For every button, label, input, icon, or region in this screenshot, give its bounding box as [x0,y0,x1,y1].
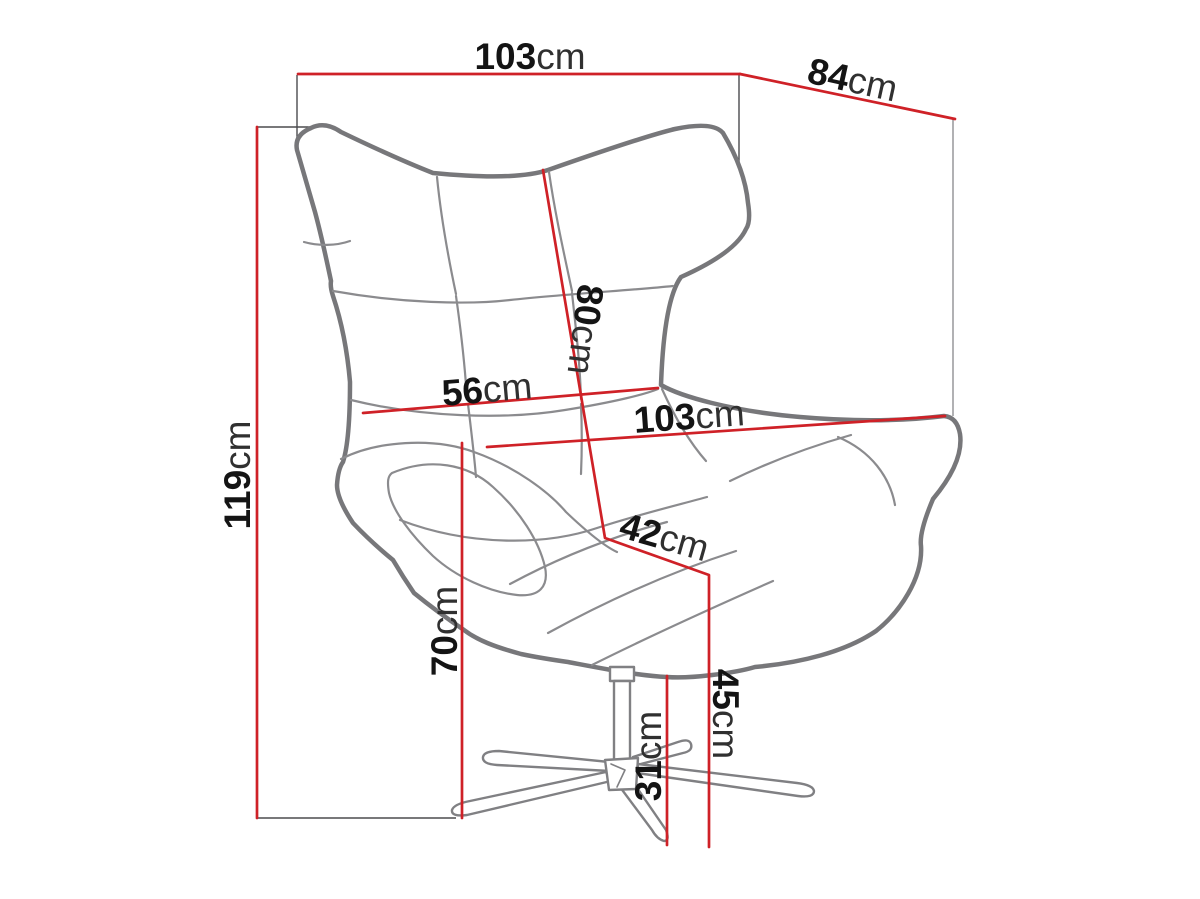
label-seat-width: 103cm [632,392,746,441]
base-leg-front-left [452,772,611,815]
label-overall-depth: 84cm [804,50,901,109]
chair-dimension-drawing: 103cm 84cm 119cm 80cm 56cm 103cm 42cm 70… [0,0,1200,899]
seam-back-right-lower [581,404,582,474]
label-base-height: 31cm [628,711,669,801]
base-column-collar [610,667,634,681]
label-seat-height: 45cm [705,669,746,759]
chair-outline [297,125,961,677]
label-overall-height: 119cm [217,420,258,529]
dimension-diagram: 103cm 84cm 119cm 80cm 56cm 103cm 42cm 70… [0,0,1200,899]
label-backrest-width: 56cm [440,365,534,414]
label-overall-width: 103cm [474,36,585,77]
label-armrest-height: 70cm [424,586,465,676]
base-leg-back-left [483,751,610,771]
